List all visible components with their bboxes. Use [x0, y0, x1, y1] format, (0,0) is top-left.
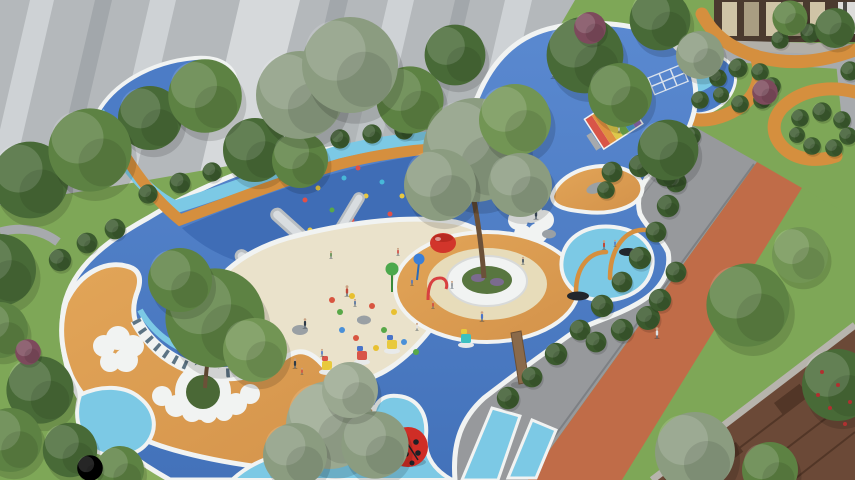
sand-toy [413, 349, 419, 355]
sand-toy [329, 297, 335, 303]
sand-toy [401, 339, 407, 345]
rendering-canvas [0, 0, 855, 480]
sand-toy [339, 327, 345, 333]
pebble-sculpture [542, 230, 556, 239]
splash-basin [567, 292, 589, 301]
tomato-sculpture [430, 233, 456, 253]
sand-toy [381, 327, 387, 333]
central-tree-plaza [395, 232, 579, 342]
sand-toy [373, 345, 379, 351]
sand-toy [391, 309, 397, 315]
sand-toy [353, 335, 359, 341]
animal-sculpture [357, 316, 371, 325]
sand-toy [349, 293, 355, 299]
climbing-hold [342, 176, 347, 181]
playground-aerial-scene [0, 0, 855, 480]
climbing-hold [330, 208, 335, 213]
climbing-hold [388, 212, 393, 217]
climbing-hold [400, 194, 405, 199]
climbing-hold [303, 198, 308, 203]
spray-disc-blue [414, 254, 425, 265]
spray-disc-green [386, 263, 399, 276]
sand-toy [337, 309, 343, 315]
climbing-hold [356, 166, 361, 171]
sand-toy [369, 303, 375, 309]
climbing-hold [380, 180, 385, 185]
